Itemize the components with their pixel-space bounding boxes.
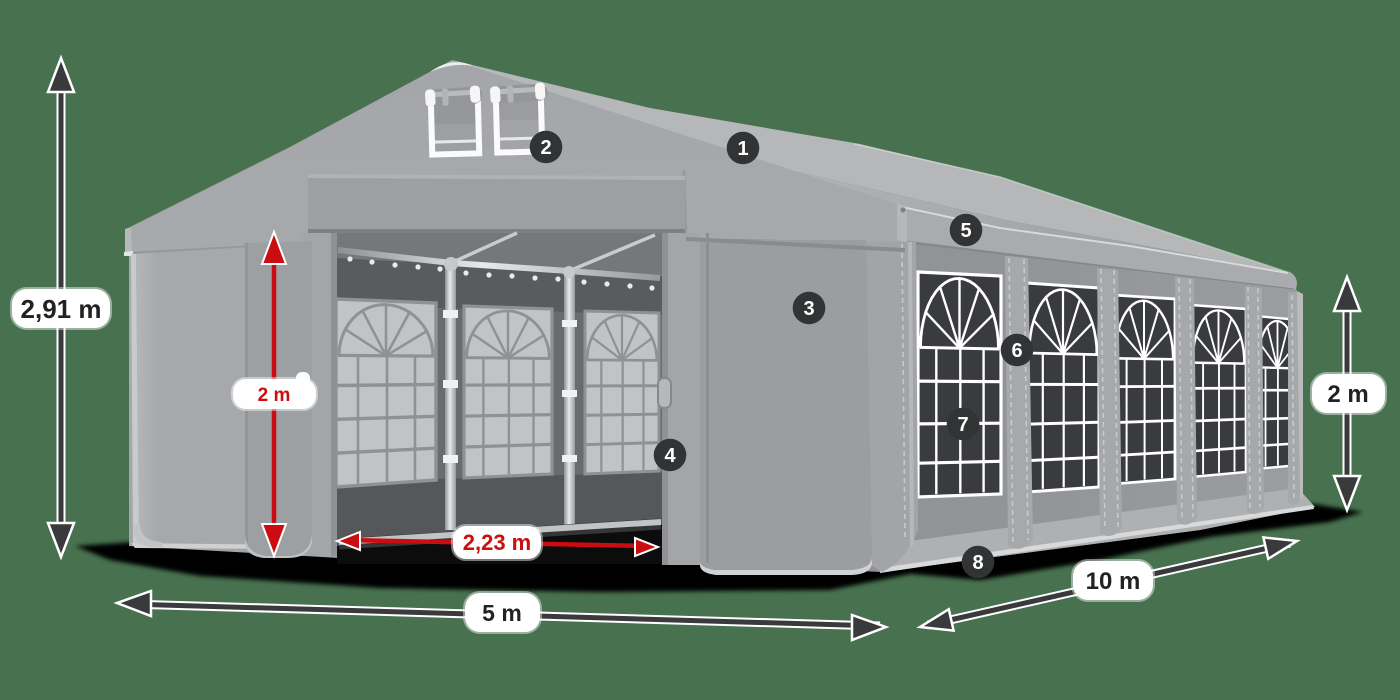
- svg-text:8: 8: [972, 552, 983, 574]
- svg-text:1: 1: [737, 138, 748, 160]
- svg-text:7: 7: [957, 414, 968, 436]
- svg-text:2 m: 2 m: [258, 385, 291, 406]
- svg-text:4: 4: [664, 445, 676, 467]
- svg-text:3: 3: [803, 298, 814, 320]
- svg-text:10 m: 10 m: [1086, 568, 1141, 595]
- svg-text:6: 6: [1011, 340, 1022, 362]
- svg-text:2: 2: [540, 137, 551, 159]
- svg-text:2,91 m: 2,91 m: [21, 294, 102, 324]
- svg-text:2,23 m: 2,23 m: [463, 530, 532, 555]
- svg-text:5: 5: [960, 220, 971, 242]
- svg-text:5 m: 5 m: [482, 600, 522, 626]
- svg-text:2 m: 2 m: [1327, 381, 1368, 408]
